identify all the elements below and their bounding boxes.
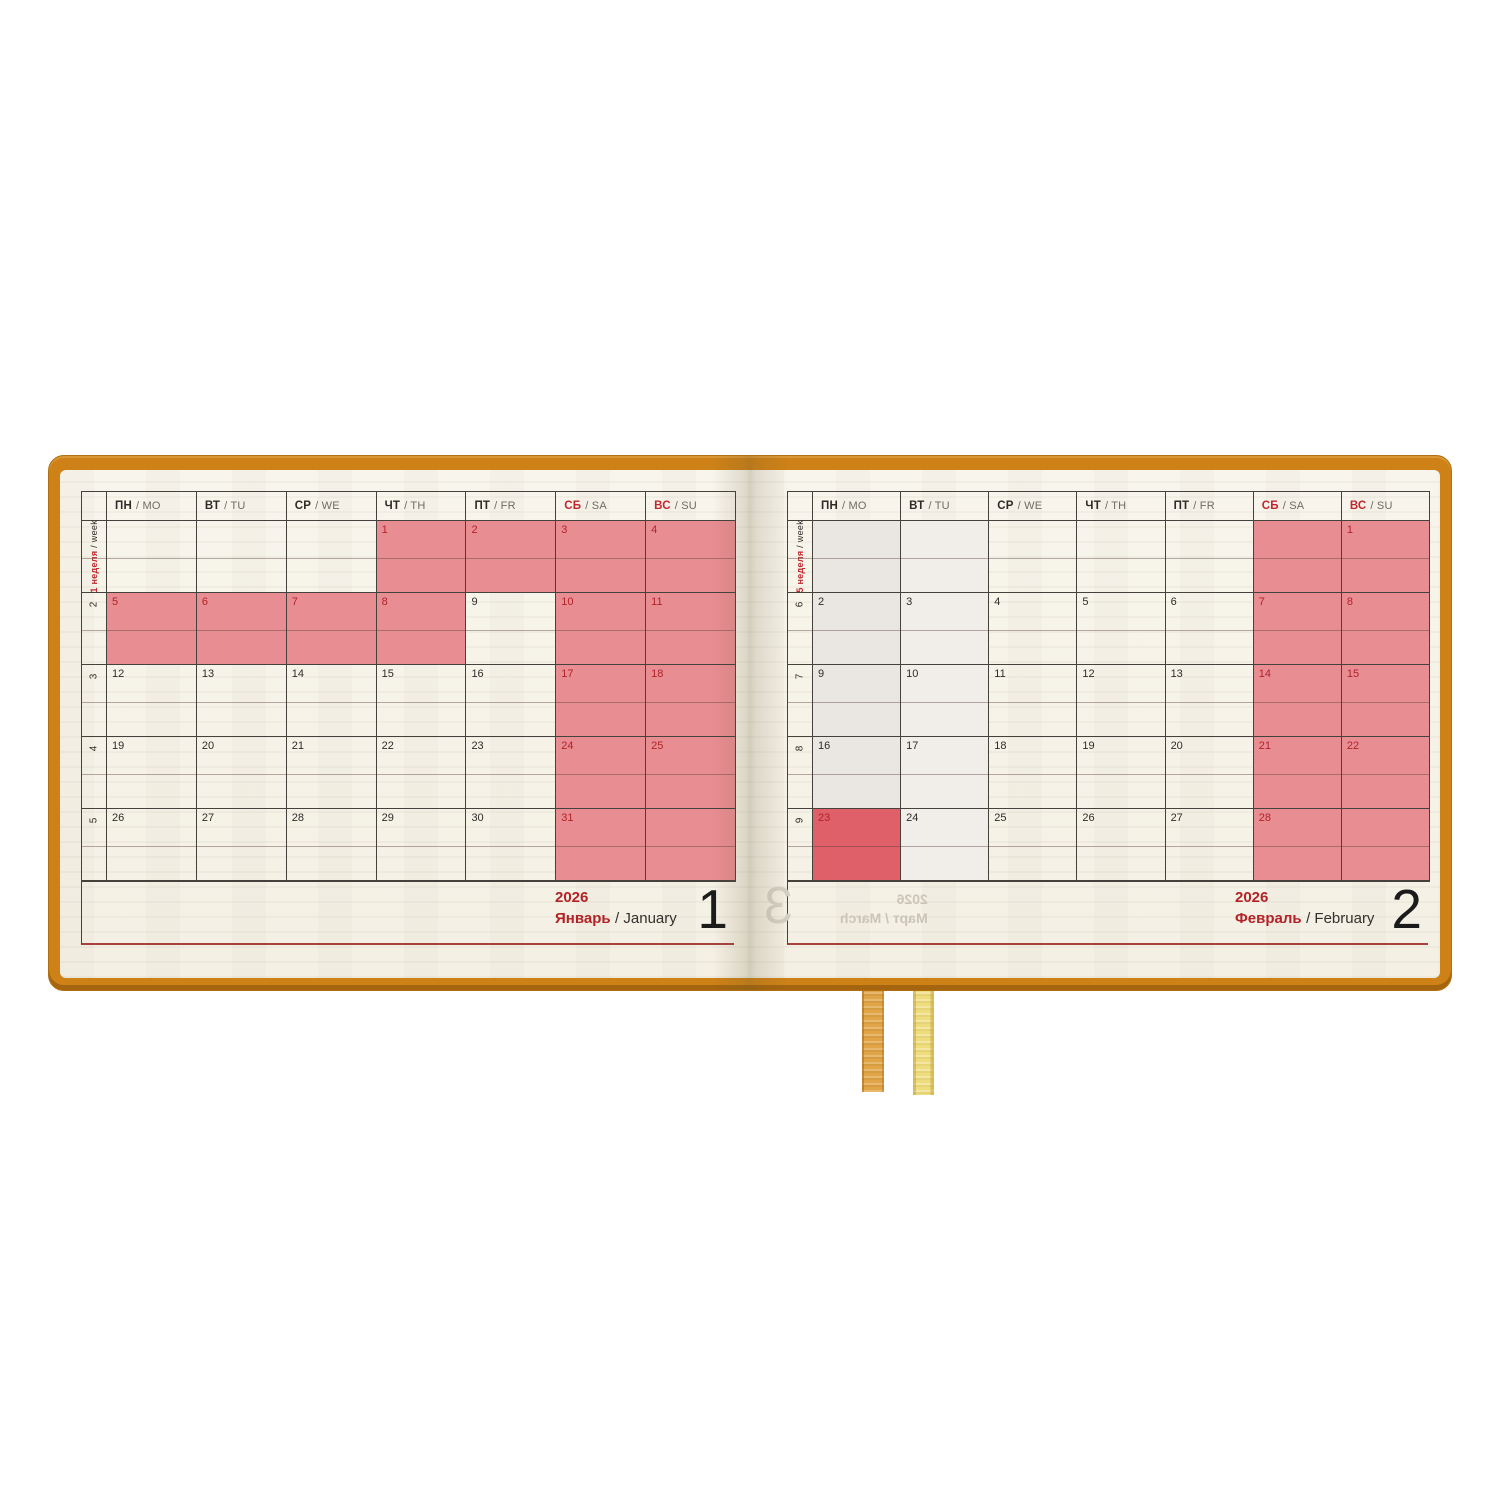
week-row: 79101112131415 <box>788 664 1429 736</box>
february-calendar-grid: ПН/ MOВТ/ TUСР/ WEЧТ/ THПТ/ FRСБ/ SAВС/ … <box>787 491 1430 882</box>
week-label-black: / week <box>795 520 805 548</box>
weekday-header: ВС/ SU <box>1342 492 1429 520</box>
calendar-day-cell: 30 <box>466 809 556 880</box>
showthrough-month-number: 3 <box>764 880 793 932</box>
day-number: 18 <box>651 668 663 680</box>
bookmark-ribbon-orange <box>862 978 884 1092</box>
calendar-day-cell: 28 <box>287 809 377 880</box>
calendar-day-cell <box>197 521 287 592</box>
calendar-day-cell: 2 <box>466 521 556 592</box>
calendar-day-cell: 13 <box>197 665 287 736</box>
day-number: 14 <box>1259 668 1271 680</box>
week-number: 9 <box>795 818 806 824</box>
calendar-day-cell: 14 <box>1254 665 1342 736</box>
week-number: 4 <box>89 746 100 752</box>
day-number: 26 <box>112 812 124 824</box>
calendar-day-cell: 20 <box>197 737 287 808</box>
weekday-header: ЧТ/ TH <box>1077 492 1165 520</box>
day-number: 13 <box>1171 668 1183 680</box>
calendar-day-cell: 17 <box>556 665 646 736</box>
calendar-day-cell: 11 <box>989 665 1077 736</box>
weekday-header: СР/ WE <box>287 492 377 520</box>
week-label: 1 неделя / week <box>82 521 106 592</box>
weekday-en: / TH <box>1105 500 1126 512</box>
calendar-day-cell: 14 <box>287 665 377 736</box>
calendar-day-cell: 7 <box>287 593 377 664</box>
week-number: 2 <box>89 602 100 608</box>
week-column-corner <box>82 492 107 520</box>
calendar-day-cell <box>901 521 989 592</box>
calendar-day-cell: 8 <box>1342 593 1429 664</box>
day-number: 17 <box>906 740 918 752</box>
calendar-day-cell <box>1254 521 1342 592</box>
page-january: ПН/ MOВТ/ TUСР/ WEЧТ/ THПТ/ FRСБ/ SAВС/ … <box>60 470 750 978</box>
week-label-black: / week <box>89 520 99 548</box>
week-row: 1 неделя / week1234 <box>82 521 735 592</box>
calendar-day-cell: 31 <box>556 809 646 880</box>
calendar-day-cell: 7 <box>1254 593 1342 664</box>
day-number: 12 <box>112 668 124 680</box>
weekday-header: ПТ/ FR <box>1166 492 1254 520</box>
day-number: 23 <box>818 812 830 824</box>
day-number: 9 <box>471 596 477 608</box>
day-number: 3 <box>561 524 567 536</box>
calendar-day-cell: 18 <box>989 737 1077 808</box>
planner-book: ПН/ MOВТ/ TUСР/ WEЧТ/ THПТ/ FRСБ/ SAВС/ … <box>48 455 1452 991</box>
day-number: 23 <box>471 740 483 752</box>
day-number: 5 <box>1082 596 1088 608</box>
month-name-en: / February <box>1306 910 1374 927</box>
calendar-day-cell: 22 <box>1342 737 1429 808</box>
weekday-en: / TU <box>224 500 245 512</box>
day-number: 7 <box>292 596 298 608</box>
day-number: 11 <box>651 596 662 608</box>
week-number: 8 <box>795 746 806 752</box>
day-number: 15 <box>382 668 394 680</box>
week-column-corner <box>788 492 813 520</box>
calendar-day-cell: 21 <box>287 737 377 808</box>
calendar-day-cell: 16 <box>466 665 556 736</box>
january-caption: 2026 Январь / January <box>555 888 677 930</box>
week-label-red: 5 неделя <box>795 548 805 593</box>
calendar-day-cell: 1 <box>1342 521 1429 592</box>
weekday-en: / WE <box>1018 500 1043 512</box>
weekday-ru: ВТ <box>909 500 924 512</box>
weekday-en: / SU <box>1370 500 1392 512</box>
weekday-en: / WE <box>315 500 340 512</box>
calendar-day-cell: 18 <box>646 665 735 736</box>
month-number: 1 <box>697 882 728 937</box>
weekday-ru: ПТ <box>1174 500 1190 512</box>
weekday-ru: ЧТ <box>1085 500 1101 512</box>
calendar-day-cell <box>1342 809 1429 880</box>
calendar-day-cell: 20 <box>1166 737 1254 808</box>
calendar-day-cell: 9 <box>466 593 556 664</box>
calendar-day-cell: 28 <box>1254 809 1342 880</box>
day-number: 12 <box>1082 668 1094 680</box>
weekday-ru: ПТ <box>474 500 490 512</box>
calendar-day-cell <box>1166 521 1254 592</box>
week-row: 5 неделя / week1 <box>788 521 1429 592</box>
calendar-day-cell <box>813 521 901 592</box>
february-caption: 2026 Февраль / February <box>1235 888 1374 930</box>
day-number: 4 <box>651 524 657 536</box>
weekday-header: ПН/ MO <box>107 492 197 520</box>
day-number: 21 <box>1259 740 1271 752</box>
january-footer: 2026 Январь / January 1 <box>81 874 734 945</box>
calendar-day-cell: 25 <box>989 809 1077 880</box>
day-number: 17 <box>561 668 573 680</box>
calendar-day-cell: 25 <box>646 737 735 808</box>
day-number: 21 <box>292 740 304 752</box>
calendar-day-cell: 22 <box>377 737 467 808</box>
weekday-ru: СР <box>997 500 1013 512</box>
calendar-day-cell <box>989 521 1077 592</box>
day-number: 16 <box>818 740 830 752</box>
calendar-day-cell: 23 <box>813 809 901 880</box>
day-number: 28 <box>1259 812 1271 824</box>
day-number: 14 <box>292 668 304 680</box>
calendar-day-cell: 24 <box>556 737 646 808</box>
day-number: 5 <box>112 596 118 608</box>
weekday-ru: ЧТ <box>385 500 401 512</box>
february-footer: 3 2026 Март / March 2026 Февраль / Febru… <box>787 874 1428 945</box>
day-number: 1 <box>1347 524 1353 536</box>
weekday-en: / SU <box>675 500 697 512</box>
weekday-header-row: ПН/ MOВТ/ TUСР/ WEЧТ/ THПТ/ FRСБ/ SAВС/ … <box>788 492 1429 521</box>
calendar-day-cell: 5 <box>1077 593 1165 664</box>
weekday-en: / TU <box>928 500 949 512</box>
calendar-day-cell: 4 <box>989 593 1077 664</box>
day-number: 19 <box>1082 740 1094 752</box>
day-number: 4 <box>994 596 1000 608</box>
day-number: 7 <box>1259 596 1265 608</box>
week-number: 7 <box>795 674 806 680</box>
calendar-day-cell: 27 <box>1166 809 1254 880</box>
weekday-ru: ВТ <box>205 500 220 512</box>
calendar-day-cell: 15 <box>377 665 467 736</box>
calendar-day-cell: 15 <box>1342 665 1429 736</box>
week-number-cell: 1 неделя / week <box>82 521 107 592</box>
day-number: 26 <box>1082 812 1094 824</box>
weekday-header: ВТ/ TU <box>901 492 989 520</box>
day-number: 27 <box>1171 812 1183 824</box>
month-name-en: / January <box>615 910 677 927</box>
day-number: 10 <box>561 596 573 608</box>
page-february: ПН/ MOВТ/ TUСР/ WEЧТ/ THПТ/ FRСБ/ SAВС/ … <box>750 470 1440 978</box>
weekday-en: / FR <box>494 500 516 512</box>
week-number-cell: 4 <box>82 737 107 808</box>
calendar-day-cell: 8 <box>377 593 467 664</box>
day-number: 27 <box>202 812 214 824</box>
calendar-day-cell: 6 <box>197 593 287 664</box>
day-number: 22 <box>1347 740 1359 752</box>
calendar-day-cell: 9 <box>813 665 901 736</box>
week-number-cell: 9 <box>788 809 813 880</box>
week-number-cell: 8 <box>788 737 813 808</box>
week-row: 2567891011 <box>82 592 735 664</box>
weekday-header: ВТ/ TU <box>197 492 287 520</box>
calendar-day-cell: 24 <box>901 809 989 880</box>
week-number: 6 <box>795 602 806 608</box>
day-number: 25 <box>651 740 663 752</box>
week-number-cell: 2 <box>82 593 107 664</box>
calendar-day-cell: 4 <box>646 521 735 592</box>
day-number: 20 <box>1171 740 1183 752</box>
calendar-day-cell: 3 <box>901 593 989 664</box>
product-photo-background: ПН/ MOВТ/ TUСР/ WEЧТ/ THПТ/ FRСБ/ SAВС/ … <box>0 0 1500 1500</box>
week-number-cell: 7 <box>788 665 813 736</box>
weekday-ru: ПН <box>115 500 132 512</box>
year-label: 2026 <box>555 888 677 908</box>
month-number: 2 <box>1391 882 1422 937</box>
weekday-header: ПН/ MO <box>813 492 901 520</box>
day-number: 2 <box>471 524 477 536</box>
calendar-day-cell: 10 <box>901 665 989 736</box>
calendar-day-cell: 11 <box>646 593 735 664</box>
day-number: 31 <box>561 812 573 824</box>
weekday-header: ВС/ SU <box>646 492 735 520</box>
week-label-red: 1 неделя <box>89 548 99 593</box>
day-number: 24 <box>906 812 918 824</box>
year-label: 2026 <box>1235 888 1374 908</box>
day-number: 3 <box>906 596 912 608</box>
day-number: 15 <box>1347 668 1359 680</box>
calendar-day-cell <box>107 521 197 592</box>
calendar-day-cell: 12 <box>107 665 197 736</box>
weekday-header-row: ПН/ MOВТ/ TUСР/ WEЧТ/ THПТ/ FRСБ/ SAВС/ … <box>82 492 735 521</box>
calendar-day-cell <box>646 809 735 880</box>
weekday-en: / TH <box>404 500 425 512</box>
week-number-cell: 3 <box>82 665 107 736</box>
weekday-header: ПТ/ FR <box>466 492 556 520</box>
week-number-cell: 5 <box>82 809 107 880</box>
month-name-ru: Январь <box>555 910 611 927</box>
calendar-day-cell <box>1077 521 1165 592</box>
calendar-day-cell: 17 <box>901 737 989 808</box>
day-number: 6 <box>202 596 208 608</box>
calendar-day-cell: 26 <box>107 809 197 880</box>
calendar-day-cell: 6 <box>1166 593 1254 664</box>
calendar-day-cell: 10 <box>556 593 646 664</box>
open-spread: ПН/ MOВТ/ TUСР/ WEЧТ/ THПТ/ FRСБ/ SAВС/ … <box>60 470 1440 978</box>
weekday-header: СР/ WE <box>989 492 1077 520</box>
calendar-day-cell: 19 <box>1077 737 1165 808</box>
calendar-day-cell: 19 <box>107 737 197 808</box>
weekday-ru: СБ <box>564 500 581 512</box>
weekday-en: / FR <box>1193 500 1215 512</box>
day-number: 28 <box>292 812 304 824</box>
weekday-ru: СБ <box>1262 500 1279 512</box>
calendar-day-cell: 2 <box>813 593 901 664</box>
january-calendar-grid: ПН/ MOВТ/ TUСР/ WEЧТ/ THПТ/ FRСБ/ SAВС/ … <box>81 491 736 882</box>
day-number: 16 <box>471 668 483 680</box>
day-number: 22 <box>382 740 394 752</box>
weekday-header: СБ/ SA <box>556 492 646 520</box>
weekday-en: / SA <box>1283 500 1305 512</box>
day-number: 20 <box>202 740 214 752</box>
week-number-cell: 6 <box>788 593 813 664</box>
day-number: 6 <box>1171 596 1177 608</box>
calendar-day-cell: 1 <box>377 521 467 592</box>
calendar-day-cell: 27 <box>197 809 287 880</box>
week-number: 5 <box>89 818 100 824</box>
weekday-header: СБ/ SA <box>1254 492 1342 520</box>
day-number: 24 <box>561 740 573 752</box>
week-row: 9232425262728 <box>788 808 1429 880</box>
week-row: 62345678 <box>788 592 1429 664</box>
day-number: 10 <box>906 668 918 680</box>
day-number: 30 <box>471 812 483 824</box>
calendar-day-cell: 21 <box>1254 737 1342 808</box>
week-row: 419202122232425 <box>82 736 735 808</box>
weekday-ru: ПН <box>821 500 838 512</box>
calendar-day-cell: 16 <box>813 737 901 808</box>
day-number: 2 <box>818 596 824 608</box>
week-label: 5 неделя / week <box>788 521 812 592</box>
calendar-day-cell <box>287 521 377 592</box>
day-number: 8 <box>382 596 388 608</box>
day-number: 25 <box>994 812 1006 824</box>
day-number: 11 <box>994 668 1005 680</box>
weekday-en: / SA <box>585 500 607 512</box>
month-name-ru: Февраль <box>1235 910 1302 927</box>
calendar-day-cell: 3 <box>556 521 646 592</box>
weekday-ru: СР <box>295 500 311 512</box>
week-row: 5262728293031 <box>82 808 735 880</box>
day-number: 8 <box>1347 596 1353 608</box>
weekday-en: / MO <box>136 500 161 512</box>
weekday-en: / MO <box>842 500 867 512</box>
bookmark-ribbon-yellow <box>913 978 934 1095</box>
calendar-day-cell: 12 <box>1077 665 1165 736</box>
week-row: 816171819202122 <box>788 736 1429 808</box>
calendar-day-cell: 26 <box>1077 809 1165 880</box>
day-number: 29 <box>382 812 394 824</box>
day-number: 9 <box>818 668 824 680</box>
day-number: 18 <box>994 740 1006 752</box>
week-number-cell: 5 неделя / week <box>788 521 813 592</box>
weekday-ru: ВС <box>1350 500 1367 512</box>
day-number: 1 <box>382 524 388 536</box>
week-number: 3 <box>89 674 100 680</box>
calendar-day-cell: 13 <box>1166 665 1254 736</box>
calendar-day-cell: 5 <box>107 593 197 664</box>
day-number: 13 <box>202 668 214 680</box>
weekday-header: ЧТ/ TH <box>377 492 467 520</box>
calendar-day-cell: 29 <box>377 809 467 880</box>
calendar-day-cell: 23 <box>466 737 556 808</box>
week-row: 312131415161718 <box>82 664 735 736</box>
showthrough-caption: 2026 Март / March <box>840 890 928 928</box>
weekday-ru: ВС <box>654 500 671 512</box>
day-number: 19 <box>112 740 124 752</box>
